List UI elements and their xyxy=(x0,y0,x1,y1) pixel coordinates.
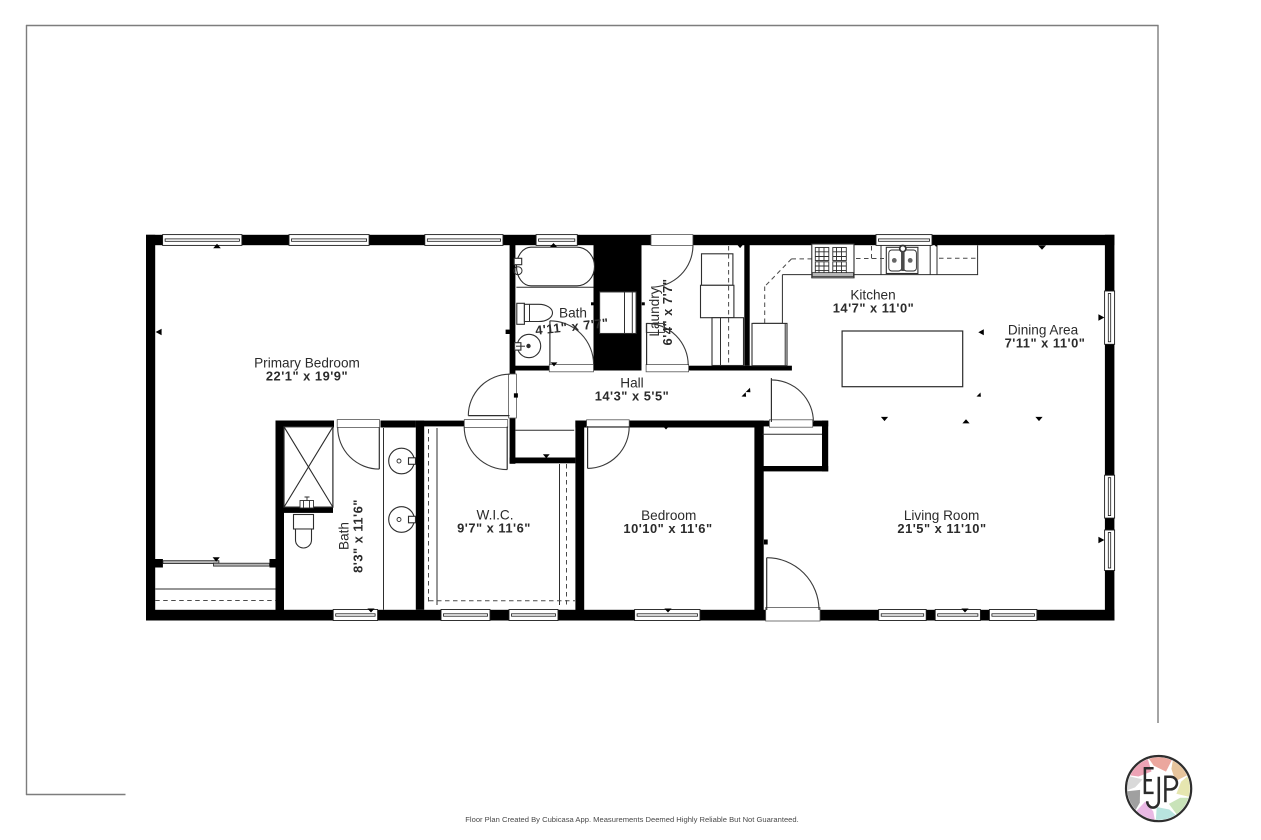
svg-text:6'4" x 7'7": 6'4" x 7'7" xyxy=(660,279,675,346)
svg-text:14'3" x 5'5": 14'3" x 5'5" xyxy=(595,389,670,404)
svg-text:14'7" x 11'0": 14'7" x 11'0" xyxy=(833,301,915,316)
svg-text:7'11" x 11'0": 7'11" x 11'0" xyxy=(1005,336,1086,351)
svg-text:21'5" x 11'10": 21'5" x 11'10" xyxy=(897,521,986,536)
svg-text:9'7" x 11'6": 9'7" x 11'6" xyxy=(457,521,531,536)
svg-text:22'1" x 19'9": 22'1" x 19'9" xyxy=(266,369,348,384)
svg-text:Floor Plan Created By Cubicasa: Floor Plan Created By Cubicasa App. Meas… xyxy=(465,815,798,824)
svg-text:Bath: Bath xyxy=(337,522,352,550)
svg-text:8'3" x 11'6": 8'3" x 11'6" xyxy=(351,499,366,573)
svg-text:10'10" x 11'6": 10'10" x 11'6" xyxy=(623,521,712,536)
